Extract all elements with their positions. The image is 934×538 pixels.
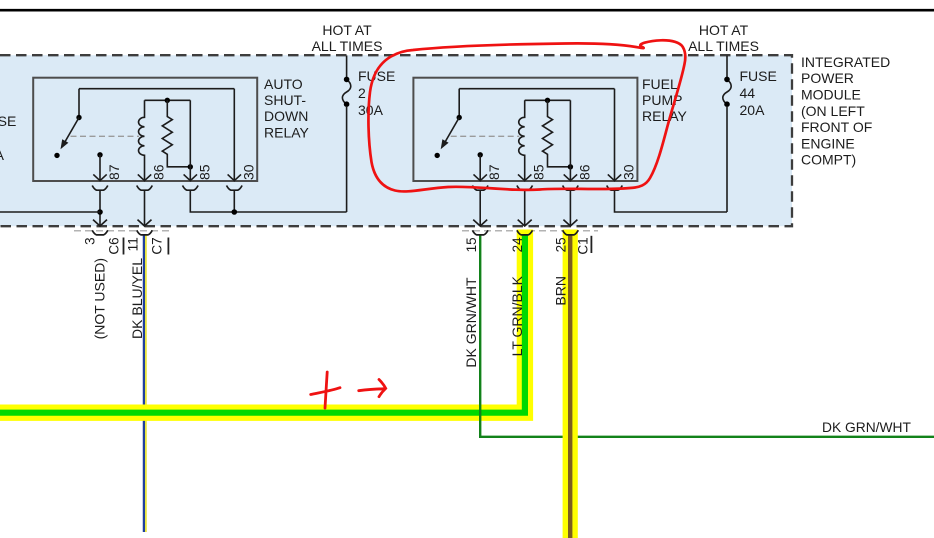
svg-text:2: 2 xyxy=(358,85,366,101)
svg-text:ENGINE: ENGINE xyxy=(801,135,855,151)
svg-text:FUSE: FUSE xyxy=(740,68,777,84)
svg-text:DK GRN/WHT: DK GRN/WHT xyxy=(822,420,911,435)
svg-text:FRONT OF: FRONT OF xyxy=(801,119,872,135)
svg-text:LT GRN/BLK: LT GRN/BLK xyxy=(509,275,525,356)
svg-text:44: 44 xyxy=(740,85,756,101)
svg-text:87: 87 xyxy=(486,164,502,180)
svg-text:DK BLU/YEL: DK BLU/YEL xyxy=(129,258,145,339)
svg-text:C7: C7 xyxy=(150,237,165,254)
svg-text:(ON LEFT: (ON LEFT xyxy=(801,103,865,119)
svg-text:30: 30 xyxy=(240,164,256,180)
svg-text:C1: C1 xyxy=(576,237,591,254)
svg-text:HOT AT: HOT AT xyxy=(322,22,372,38)
svg-text:86: 86 xyxy=(151,164,167,180)
svg-text:30A: 30A xyxy=(358,102,384,118)
svg-text:(NOT USED): (NOT USED) xyxy=(92,258,108,339)
svg-text:86: 86 xyxy=(576,164,592,180)
svg-text:25: 25 xyxy=(553,237,568,252)
svg-text:RELAY: RELAY xyxy=(264,124,310,140)
svg-text:DK GRN/WHT: DK GRN/WHT xyxy=(463,277,479,368)
svg-text:POWER: POWER xyxy=(801,70,854,86)
svg-text:20A: 20A xyxy=(740,102,766,118)
svg-text:C6: C6 xyxy=(106,237,121,254)
svg-text:AUTO: AUTO xyxy=(264,76,303,92)
svg-text:30A: 30A xyxy=(0,147,5,163)
svg-text:87: 87 xyxy=(106,164,122,180)
svg-text:85: 85 xyxy=(196,164,212,180)
svg-text:ALL TIMES: ALL TIMES xyxy=(312,38,383,54)
svg-text:DOWN: DOWN xyxy=(264,108,308,124)
svg-text:3: 3 xyxy=(83,237,98,245)
svg-text:15: 15 xyxy=(464,237,479,252)
svg-text:HOT AT: HOT AT xyxy=(699,22,749,38)
svg-text:85: 85 xyxy=(531,164,547,180)
svg-text:FUSE: FUSE xyxy=(0,113,16,129)
svg-text:30: 30 xyxy=(621,164,637,180)
svg-text:SHUT-: SHUT- xyxy=(264,92,306,108)
svg-text:BRN: BRN xyxy=(552,276,568,306)
svg-text:11: 11 xyxy=(126,237,141,251)
svg-text:24: 24 xyxy=(510,237,525,253)
svg-text:RELAY: RELAY xyxy=(642,108,688,124)
svg-text:COMPT): COMPT) xyxy=(801,152,856,168)
svg-text:MODULE: MODULE xyxy=(801,87,861,103)
svg-text:FUEL: FUEL xyxy=(642,76,678,92)
svg-text:ALL TIMES: ALL TIMES xyxy=(688,38,759,54)
svg-text:INTEGRATED: INTEGRATED xyxy=(801,54,890,70)
